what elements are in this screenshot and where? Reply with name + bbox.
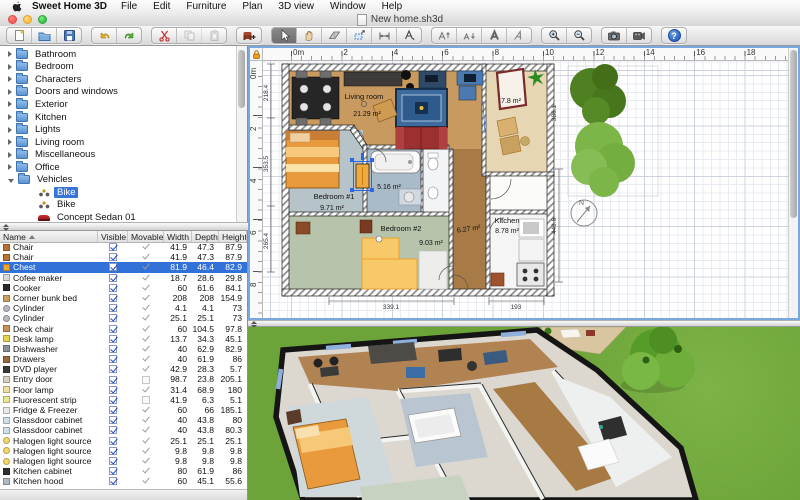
category-icon [16, 150, 28, 159]
dimension-label: 449.6 [551, 217, 558, 234]
catalog-item[interactable]: Miscellaneous [0, 148, 237, 161]
visible-checkbox[interactable] [109, 396, 117, 404]
movable-checkbox[interactable] [142, 355, 150, 363]
category-icon [16, 125, 28, 134]
menu-item[interactable]: Plan [242, 1, 262, 12]
furniture-name: DVD player [13, 364, 57, 374]
ruler-label: 18 [745, 48, 756, 57]
movable-checkbox[interactable] [142, 467, 150, 475]
visible-checkbox[interactable] [109, 477, 117, 485]
furniture-name: Fluorescent strip [13, 395, 77, 405]
furniture-icon [3, 407, 10, 414]
height-value: 5.1 [219, 395, 247, 405]
catalog-item[interactable]: Living room [0, 136, 237, 149]
width-value: 80 [164, 466, 192, 476]
furniture-icon [3, 315, 10, 322]
furniture-name: Cylinder [13, 303, 45, 313]
menu-item[interactable]: 3D view [278, 1, 314, 12]
hall-floor[interactable] [453, 149, 486, 289]
movable-checkbox[interactable] [142, 406, 150, 414]
ruler-label: 4 [250, 171, 261, 183]
catalog-item-label: Office [32, 162, 63, 173]
plan-3d-divider[interactable] [248, 320, 800, 327]
catalog-item-label: Concept Sedan 01 [54, 212, 139, 222]
width-value: 4.1 [164, 303, 192, 313]
visible-checkbox[interactable] [109, 314, 117, 322]
category-icon [16, 50, 28, 59]
movable-checkbox[interactable] [142, 457, 150, 465]
room-label: Bedroom #2 [381, 224, 422, 233]
disclosure-triangle-icon[interactable] [8, 152, 12, 158]
menubar: Sweet Home 3D FileEditFurniturePlan3D vi… [0, 0, 800, 14]
plan-scrollbar-thumb[interactable] [790, 50, 797, 218]
catalog-item[interactable]: Characters [0, 73, 237, 86]
menu-item[interactable]: Window [330, 1, 366, 12]
catalog-item-label: Bathroom [32, 49, 79, 60]
table-row[interactable]: Deck chair 60 104.5 97.8 [0, 324, 247, 334]
width-value: 98.7 [164, 374, 192, 384]
width-value: 25.1 [164, 436, 192, 446]
dimension-label: 386.1 [551, 104, 558, 121]
movable-checkbox[interactable] [142, 263, 150, 271]
ruler-label: 10 [543, 48, 554, 57]
movable-checkbox[interactable] [142, 253, 150, 261]
furniture-name: Cofee maker [13, 273, 62, 283]
furniture-name: Chair [13, 242, 34, 252]
depth-value: 25.1 [192, 313, 219, 323]
ruler-label: 0m [250, 67, 261, 79]
vertical-ruler: 0m2468 [250, 61, 263, 318]
movable-checkbox[interactable] [142, 376, 150, 384]
movable-checkbox[interactable] [142, 314, 150, 322]
furniture-name: Dishwasher [13, 344, 58, 354]
menu-item[interactable]: Help [382, 1, 403, 12]
catalog-table-divider[interactable] [0, 222, 248, 231]
depth-value: 34.3 [192, 334, 219, 344]
open-button[interactable] [32, 28, 57, 43]
compass[interactable]: N [571, 200, 597, 226]
furniture-name: Desk lamp [13, 334, 54, 344]
table-body: Chair 41.9 47.3 87.9 Chair 41.9 47.3 87.… [0, 242, 247, 487]
furniture-name: Entry door [13, 374, 53, 384]
height-value: 82.9 [219, 262, 247, 272]
table-row[interactable]: Drawers 40 61.9 86 [0, 354, 247, 364]
toolbar: ? [0, 26, 800, 46]
table-row[interactable]: Halogen light source 9.8 9.8 9.8 [0, 456, 247, 466]
movable-checkbox[interactable] [142, 345, 150, 353]
disclosure-triangle-icon[interactable] [8, 164, 12, 170]
movable-checkbox[interactable] [142, 243, 150, 251]
column-header-visible[interactable]: Visible [98, 231, 128, 242]
height-value: 154.9 [219, 293, 247, 303]
width-value: 13.7 [164, 334, 192, 344]
furniture-icon [3, 244, 10, 251]
select-tool-button[interactable] [272, 28, 297, 43]
width-value: 40 [164, 354, 192, 364]
menu-item[interactable]: File [121, 1, 137, 12]
table-row[interactable]: Glassdoor cabinet 40 43.8 80.3 [0, 425, 247, 435]
column-header-height[interactable]: Height [219, 231, 247, 242]
catalog-item-label: Lights [32, 124, 63, 135]
movable-checkbox[interactable] [142, 477, 150, 485]
table-row[interactable]: Cooker 60 61.6 84.1 [0, 283, 247, 293]
plan-panel: 0m24681012141618 0m2468 [248, 46, 800, 320]
furniture-name: Kitchen hood [13, 476, 63, 486]
table-row[interactable]: Floor lamp 31.4 68.9 180 [0, 385, 247, 395]
disclosure-triangle-icon[interactable] [8, 179, 14, 183]
catalog-item-label: Characters [32, 74, 84, 85]
visible-checkbox[interactable] [109, 294, 117, 302]
height-value: 82.9 [219, 344, 247, 354]
table-row[interactable]: Chest 81.9 46.4 82.9 [0, 262, 247, 272]
menu-item[interactable]: Furniture [186, 1, 226, 12]
height-value: 86 [219, 354, 247, 364]
catalog-item-label: Bike [54, 199, 78, 210]
plan-scrollbar[interactable] [788, 48, 798, 318]
movable-checkbox[interactable] [142, 426, 150, 434]
width-value: 60 [164, 283, 192, 293]
furniture-name: Halogen light source [13, 446, 91, 456]
movable-checkbox[interactable] [142, 365, 150, 373]
furniture-name: Chest [13, 262, 35, 272]
visible-checkbox[interactable] [109, 467, 117, 475]
create-walls-button[interactable] [322, 28, 347, 43]
visible-checkbox[interactable] [109, 345, 117, 353]
create-rooms-button[interactable] [347, 28, 372, 43]
furniture-name: Chair [13, 252, 34, 262]
depth-value: 4.1 [192, 303, 219, 313]
movable-checkbox[interactable] [142, 335, 150, 343]
cut-button[interactable] [152, 28, 177, 43]
furniture-icon [3, 305, 10, 312]
height-value: 73 [219, 303, 247, 313]
disclosure-triangle-icon[interactable] [8, 139, 12, 145]
catalog-item[interactable]: Bike [0, 199, 237, 212]
room-area: 8.78 m² [495, 228, 519, 235]
ruler-label: 14 [644, 48, 655, 57]
width-value: 25.1 [164, 313, 192, 323]
catalog-item[interactable]: Doors and windows [0, 86, 237, 99]
apple-menu-icon[interactable] [12, 1, 22, 12]
height-value: 205.1 [219, 374, 247, 384]
depth-value: 47.3 [192, 242, 219, 252]
catalog-item[interactable]: Concept Sedan 01 [0, 211, 237, 222]
room-label: Kitchen [494, 216, 519, 225]
category-icon [16, 113, 28, 122]
movable-checkbox[interactable] [142, 325, 150, 333]
pan-tool-button[interactable] [297, 28, 322, 43]
furniture-icon [3, 254, 10, 261]
height-value: 180 [219, 385, 247, 395]
catalog-item-label: Miscellaneous [32, 149, 98, 160]
ruler-label: 16 [694, 48, 705, 57]
table-row[interactable]: Cofee maker 18.7 28.6 29.8 [0, 273, 247, 283]
catalog-item[interactable]: Bedroom [0, 61, 237, 74]
visible-checkbox[interactable] [109, 426, 117, 434]
create-video-button[interactable] [627, 28, 651, 43]
disclosure-triangle-icon[interactable] [8, 101, 12, 107]
furniture-name: Drawers [13, 354, 45, 364]
height-value: 5.7 [219, 364, 247, 374]
height-value: 9.8 [219, 456, 247, 466]
height-value: 185.1 [219, 405, 247, 415]
table-row[interactable]: Halogen light source 9.8 9.8 9.8 [0, 446, 247, 456]
disclosure-triangle-icon[interactable] [8, 127, 12, 133]
add-furniture-button[interactable] [237, 28, 261, 43]
width-value: 41.9 [164, 395, 192, 405]
visible-checkbox[interactable] [109, 386, 117, 394]
catalog-scrollbar[interactable] [236, 46, 247, 222]
table-row[interactable]: Dishwasher 40 62.9 82.9 [0, 344, 247, 354]
visible-checkbox[interactable] [109, 253, 117, 261]
window-title: New home.sh3d [371, 14, 443, 25]
depth-value: 28.3 [192, 364, 219, 374]
table-row[interactable]: Kitchen cabinet 80 61.9 86 [0, 466, 247, 476]
room-area: 9.03 m² [419, 240, 443, 247]
visible-checkbox[interactable] [109, 437, 117, 445]
horizontal-ruler: 0m24681012141618 [263, 48, 788, 61]
depth-value: 61.6 [192, 283, 219, 293]
divider-up-icon[interactable] [251, 321, 257, 324]
create-dimensions-button[interactable] [372, 28, 397, 43]
visible-checkbox[interactable] [109, 274, 117, 282]
visible-checkbox[interactable] [109, 304, 117, 312]
room-area: 7.8 m² [501, 98, 522, 105]
height-value: 80 [219, 415, 247, 425]
disclosure-triangle-icon[interactable] [8, 76, 12, 82]
width-value: 60 [164, 476, 192, 486]
movable-checkbox[interactable] [142, 416, 150, 424]
catalog-item-label: Exterior [32, 99, 71, 110]
ruler-label: 4 [392, 48, 398, 57]
trees[interactable] [568, 64, 658, 197]
dimension-label: 218.4 [263, 84, 270, 101]
furniture-icon [3, 396, 10, 403]
width-value: 81.9 [164, 262, 192, 272]
depth-value: 208 [192, 293, 219, 303]
movable-checkbox[interactable] [142, 396, 150, 404]
help-icon: ? [668, 29, 681, 42]
furniture-icon [3, 366, 10, 373]
dimension-label: 265.4 [263, 232, 270, 249]
toggle-bold-button[interactable] [482, 28, 507, 43]
toilet-floor[interactable] [423, 149, 449, 212]
create-photo-button[interactable] [602, 28, 627, 43]
category-icon [38, 215, 50, 221]
disclosure-triangle-icon[interactable] [8, 64, 12, 70]
width-value: 31.4 [164, 385, 192, 395]
column-header-depth[interactable]: Depth [192, 231, 219, 242]
increase-text-size-button[interactable] [432, 28, 457, 43]
table-row[interactable]: Cylinder 4.1 4.1 73 [0, 303, 247, 313]
new-home-button[interactable] [7, 28, 32, 43]
visible-checkbox[interactable] [109, 284, 117, 292]
room-area: 21.29 m² [353, 111, 381, 118]
menu-item[interactable]: Edit [153, 1, 170, 12]
create-text-button[interactable] [397, 28, 421, 43]
table-row[interactable]: Fluorescent strip 41.9 6.3 5.1 [0, 395, 247, 405]
movable-checkbox[interactable] [142, 274, 150, 282]
decrease-text-size-button[interactable] [457, 28, 482, 43]
catalog-item[interactable]: Bathroom [0, 48, 237, 61]
compass-north-label: N [579, 200, 584, 207]
save-button[interactable] [57, 28, 81, 43]
visible-checkbox[interactable] [109, 243, 117, 251]
redo-button[interactable] [117, 28, 141, 43]
lock-icon [251, 49, 262, 60]
movable-checkbox[interactable] [142, 284, 150, 292]
catalog-scrollbar-thumb[interactable] [238, 50, 245, 108]
furniture-icon [3, 478, 10, 485]
catalog-item-label: Vehicles [34, 174, 75, 185]
ruler-label: 2 [250, 119, 261, 131]
height-value: 45.1 [219, 334, 247, 344]
height-value: 86 [219, 466, 247, 476]
ruler-label: 2 [341, 48, 347, 57]
table-row[interactable]: Glassdoor cabinet 40 43.8 80 [0, 415, 247, 425]
sweet-home-3d-app: Sweet Home 3D FileEditFurniturePlan3D vi… [0, 0, 800, 500]
furniture-name: Glassdoor cabinet [13, 415, 82, 425]
depth-value: 43.8 [192, 415, 219, 425]
copy-button[interactable] [177, 28, 202, 43]
furniture-name: Cooker [13, 283, 41, 293]
depth-value: 47.3 [192, 252, 219, 262]
furniture-icon [3, 274, 10, 281]
movable-checkbox[interactable] [142, 304, 150, 312]
movable-checkbox[interactable] [142, 437, 150, 445]
table-row[interactable]: Chair 41.9 47.3 87.9 [0, 242, 247, 252]
catalog-item[interactable]: Vehicles [0, 173, 237, 186]
zoom-in-button[interactable] [542, 28, 567, 43]
catalog-item[interactable]: Bike [0, 186, 237, 199]
visible-checkbox[interactable] [109, 416, 117, 424]
3d-view[interactable] [248, 327, 800, 500]
furniture-icon [3, 437, 10, 444]
depth-value: 62.9 [192, 344, 219, 354]
dimension-label: 339.1 [383, 304, 400, 311]
visible-checkbox[interactable] [109, 376, 117, 384]
visible-checkbox[interactable] [109, 447, 117, 455]
depth-value: 43.8 [192, 425, 219, 435]
catalog-tree: Bathroom Bedroom Characters D [0, 48, 237, 222]
visible-checkbox[interactable] [109, 365, 117, 373]
furniture-icon [3, 335, 10, 342]
toggle-italic-button[interactable] [507, 28, 531, 43]
undo-button[interactable] [92, 28, 117, 43]
disclosure-triangle-icon[interactable] [8, 89, 12, 95]
ruler-label: 8 [250, 275, 261, 287]
catalog-item-label: Living room [32, 137, 87, 148]
width-value: 18.7 [164, 273, 192, 283]
zoom-out-button[interactable] [567, 28, 591, 43]
category-icon [18, 175, 30, 184]
entry-floor[interactable] [490, 176, 547, 210]
height-value: 84.1 [219, 283, 247, 293]
furniture-icon [3, 427, 10, 434]
catalog-item[interactable]: Lights [0, 123, 237, 136]
furniture-icon [3, 264, 10, 271]
furniture-name: Deck chair [13, 324, 54, 334]
height-value: 87.9 [219, 252, 247, 262]
furniture-icon [3, 345, 10, 352]
furniture-icon [3, 325, 10, 332]
furniture-name: Cylinder [13, 313, 45, 323]
table-row[interactable]: Entry door 98.7 23.8 205.1 [0, 374, 247, 384]
movable-checkbox[interactable] [142, 386, 150, 394]
category-icon [16, 100, 28, 109]
furniture-name: Halogen light source [13, 456, 91, 466]
table-row[interactable]: Kitchen hood 60 45.1 55.6 [0, 476, 247, 486]
depth-value: 104.5 [192, 324, 219, 334]
height-value: 55.6 [219, 476, 247, 486]
table-row[interactable]: Desk lamp 13.7 34.3 45.1 [0, 334, 247, 344]
furniture-name: Fridge & Freezer [13, 405, 77, 415]
table-row[interactable]: Cylinder 25.1 25.1 73 [0, 313, 247, 323]
height-value: 80.3 [219, 425, 247, 435]
depth-value: 68.9 [192, 385, 219, 395]
table-row[interactable]: Fridge & Freezer 60 66 185.1 [0, 405, 247, 415]
divider-up-icon[interactable] [3, 224, 9, 227]
category-icon [16, 75, 28, 84]
furniture-icon [3, 447, 10, 454]
category-icon [16, 62, 28, 71]
column-header-width[interactable]: Width [164, 231, 192, 242]
furniture-name: Glassdoor cabinet [13, 425, 82, 435]
document-icon [357, 14, 367, 26]
disclosure-triangle-icon[interactable] [8, 51, 12, 57]
catalog-item[interactable]: Office [0, 161, 237, 174]
catalog-item[interactable]: Kitchen [0, 111, 237, 124]
visible-checkbox[interactable] [109, 406, 117, 414]
category-icon [38, 200, 50, 209]
visible-checkbox[interactable] [109, 457, 117, 465]
width-value: 40 [164, 344, 192, 354]
app-menu[interactable]: Sweet Home 3D [32, 1, 107, 12]
visible-checkbox[interactable] [109, 263, 117, 271]
paste-button[interactable] [202, 28, 226, 43]
depth-value: 6.3 [192, 395, 219, 405]
room-label: Living room [345, 92, 384, 101]
catalog-item[interactable]: Exterior [0, 98, 237, 111]
depth-value: 28.6 [192, 273, 219, 283]
ruler-label: 12 [593, 48, 604, 57]
table-row[interactable]: Corner bunk bed 208 208 154.9 [0, 293, 247, 303]
help-button[interactable]: ? [662, 28, 686, 43]
furniture-name: Kitchen cabinet [13, 466, 72, 476]
ruler-label: 8 [493, 48, 499, 57]
catalog-item-label: Bedroom [32, 61, 77, 72]
visible-checkbox[interactable] [109, 325, 117, 333]
room-area: 9.71 m² [320, 205, 344, 212]
table-row[interactable]: DVD player 42.9 28.3 5.7 [0, 364, 247, 374]
table-row[interactable]: Chair 41.9 47.3 87.9 [0, 252, 247, 262]
movable-checkbox[interactable] [142, 294, 150, 302]
visible-checkbox[interactable] [109, 355, 117, 363]
table-row[interactable]: Halogen light source 25.1 25.1 25.1 [0, 436, 247, 446]
plan-canvas[interactable]: N Living room 21.29 m² Bedroom #1 9.71 m [263, 61, 788, 318]
height-value: 87.9 [219, 242, 247, 252]
disclosure-triangle-icon[interactable] [8, 114, 12, 120]
visible-checkbox[interactable] [109, 335, 117, 343]
catalog-item-label: Bike [54, 187, 78, 198]
category-icon [16, 163, 28, 172]
width-value: 41.9 [164, 242, 192, 252]
furniture-icon [3, 417, 10, 424]
height-value: 97.8 [219, 324, 247, 334]
movable-checkbox[interactable] [142, 447, 150, 455]
column-header-name[interactable]: Name [0, 231, 98, 242]
furniture-icon [3, 386, 10, 393]
